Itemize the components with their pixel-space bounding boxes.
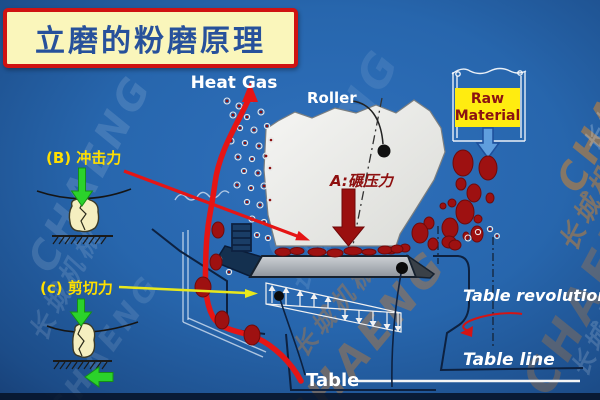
shear-down-arrow	[71, 299, 92, 326]
compression-force-label: A:碾压力	[330, 170, 393, 191]
heat-gas-label: Heat Gas	[186, 73, 282, 93]
table-revolution-label: Table revolution	[463, 286, 600, 305]
table-line-label: Table line	[463, 350, 555, 370]
diagram-background: CHAENG 长城机械 CHAENG CHAENG 长城机械 长城机械 CHAE…	[0, 0, 600, 400]
raw-material-line1: Raw	[471, 91, 504, 107]
rock-impact-figure	[37, 168, 131, 244]
pressure-distribution	[266, 283, 402, 332]
connector-dot-table	[396, 262, 408, 274]
shear-force-label: (c) 剪切力	[40, 277, 113, 298]
table-label: Table	[306, 370, 359, 391]
rock-shear-figure	[47, 299, 138, 387]
raw-material-line2: Material	[455, 108, 521, 124]
raw-material-box: Raw Material	[455, 88, 520, 127]
impact-force-label: (B) 冲击力	[46, 147, 121, 168]
feed-arrow	[477, 128, 499, 158]
ladder-structure	[232, 224, 251, 251]
connector-dot-pressure	[274, 291, 284, 301]
page-title: 立磨的粉磨原理	[35, 16, 266, 60]
table-revolution-arc	[460, 313, 522, 337]
title-banner: 立磨的粉磨原理	[3, 8, 298, 68]
bottom-edge-strip	[0, 393, 600, 400]
roller-leader-dot	[378, 145, 391, 158]
roller-label: Roller	[307, 89, 357, 107]
shear-left-arrow	[85, 367, 113, 387]
